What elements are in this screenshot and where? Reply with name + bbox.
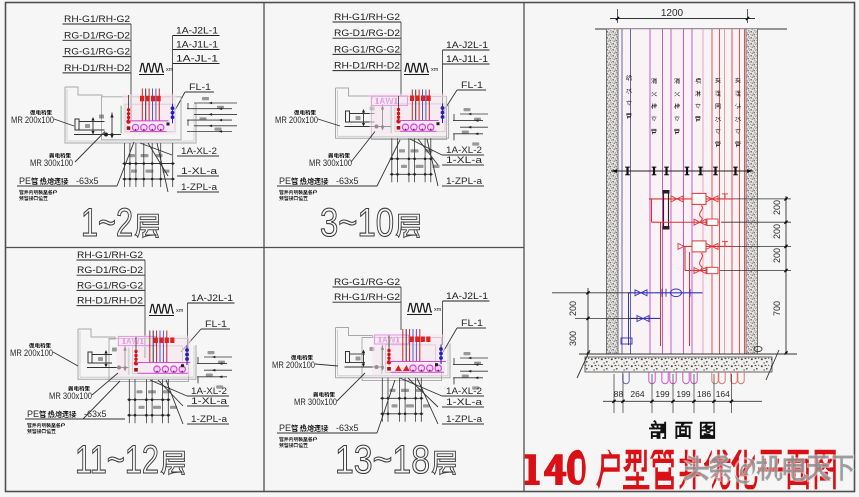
svg-text:186: 186 (697, 389, 711, 399)
svg-text:MR 200x100: MR 200x100 (275, 115, 318, 125)
svg-text:RH-D1/RH-D2: RH-D1/RH-D2 (64, 63, 130, 73)
svg-text:MR 300x100: MR 300x100 (309, 158, 352, 168)
svg-text:MR 200x100: MR 200x100 (11, 115, 54, 125)
svg-text:FL-1: FL-1 (205, 319, 227, 329)
svg-text:1A-J1L-1: 1A-J1L-1 (176, 40, 218, 50)
svg-text:300: 300 (568, 331, 578, 346)
svg-text:-63x5: -63x5 (336, 176, 359, 186)
svg-text:200: 200 (568, 301, 578, 316)
svg-text:200: 200 (772, 224, 782, 239)
svg-text:PE: PE (19, 176, 31, 186)
svg-text:FL-1: FL-1 (189, 82, 211, 92)
svg-text:-63x5: -63x5 (336, 423, 359, 433)
svg-text:88: 88 (614, 389, 624, 399)
svg-text:PE: PE (279, 176, 291, 186)
svg-text:1-XL-a: 1-XL-a (181, 166, 217, 176)
svg-text:11~12: 11~12 (75, 438, 159, 482)
svg-text:MR 200x100: MR 200x100 (272, 360, 315, 370)
svg-text:13~18: 13~18 (335, 438, 430, 482)
svg-text:1A-XL-2: 1A-XL-2 (446, 386, 482, 396)
svg-text:FL-1: FL-1 (461, 80, 483, 90)
svg-text:MR 300x100: MR 300x100 (294, 397, 337, 407)
svg-text:RH-G1/RH-G2: RH-G1/RH-G2 (64, 14, 130, 24)
svg-text:1A-JL-1: 1A-JL-1 (176, 54, 218, 64)
svg-text:264: 264 (630, 389, 644, 399)
svg-text:RH-D1/RH-D2: RH-D1/RH-D2 (77, 296, 143, 306)
svg-text:1-ZPL-a: 1-ZPL-a (181, 182, 217, 192)
svg-text:PE: PE (279, 423, 291, 433)
svg-text:1A-XL-2: 1A-XL-2 (181, 146, 217, 156)
svg-text:1A-J1L-1: 1A-J1L-1 (446, 54, 488, 64)
svg-text:1-XL-a: 1-XL-a (446, 397, 482, 407)
svg-text:RG-G1/RG-G2: RG-G1/RG-G2 (334, 277, 400, 287)
svg-text:RG-G1/RG-G2: RG-G1/RG-G2 (334, 44, 400, 54)
svg-text:MR 300x100: MR 300x100 (30, 158, 73, 168)
svg-text:1-XL-a: 1-XL-a (446, 155, 482, 165)
svg-text:xm: xm (431, 67, 439, 73)
svg-text:1~2: 1~2 (81, 201, 133, 245)
svg-text:-63x5: -63x5 (76, 176, 99, 186)
svg-text:1A-J2L-1: 1A-J2L-1 (446, 291, 488, 301)
svg-text:1-XL-a: 1-XL-a (191, 396, 227, 406)
svg-text:1A-XL-2: 1A-XL-2 (446, 145, 482, 155)
svg-text:MR 300x100: MR 300x100 (49, 391, 92, 401)
svg-text:RG-D1/RG-D2: RG-D1/RG-D2 (77, 265, 143, 275)
svg-text:200: 200 (772, 248, 782, 263)
svg-text:xm: xm (176, 308, 184, 314)
svg-text:164: 164 (716, 389, 730, 399)
svg-text:3~10: 3~10 (320, 201, 394, 245)
svg-text:RG-D1/RG-D2: RG-D1/RG-D2 (334, 28, 400, 38)
svg-text:xm: xm (434, 307, 442, 313)
svg-text:200: 200 (772, 200, 782, 215)
svg-text:1-ZPL-a: 1-ZPL-a (446, 176, 482, 186)
svg-text:1200: 1200 (661, 8, 684, 19)
svg-text:RH-D1/RH-D2: RH-D1/RH-D2 (334, 61, 400, 71)
svg-text:RH-G1/RH-G2: RH-G1/RH-G2 (334, 12, 400, 22)
svg-text:RG-G1/RG-G2: RG-G1/RG-G2 (64, 47, 130, 57)
svg-text:1A-XL-2: 1A-XL-2 (191, 386, 227, 396)
svg-text:PE: PE (27, 409, 39, 419)
svg-text:RH-G1/RH-G2: RH-G1/RH-G2 (334, 292, 400, 302)
svg-text:MR 200x100: MR 200x100 (10, 348, 53, 358)
svg-text:700: 700 (772, 301, 782, 316)
svg-text:1A-J2L-1: 1A-J2L-1 (176, 26, 218, 36)
svg-text:199: 199 (655, 389, 669, 399)
svg-text:RG-D1/RG-D2: RG-D1/RG-D2 (64, 30, 130, 40)
svg-text:1-ZPL-a: 1-ZPL-a (191, 414, 227, 424)
svg-text:199: 199 (676, 389, 690, 399)
svg-text:FL-1: FL-1 (461, 318, 483, 328)
svg-text:1A-J2L-1: 1A-J2L-1 (191, 293, 233, 303)
svg-text:1-ZPL-a: 1-ZPL-a (446, 414, 482, 424)
svg-text:xm: xm (166, 67, 174, 73)
svg-text:RH-G1/RH-G2: RH-G1/RH-G2 (77, 250, 143, 260)
svg-text:RG-G1/RG-G2: RG-G1/RG-G2 (77, 280, 143, 290)
svg-text:1A-J2L-1: 1A-J2L-1 (446, 40, 488, 50)
